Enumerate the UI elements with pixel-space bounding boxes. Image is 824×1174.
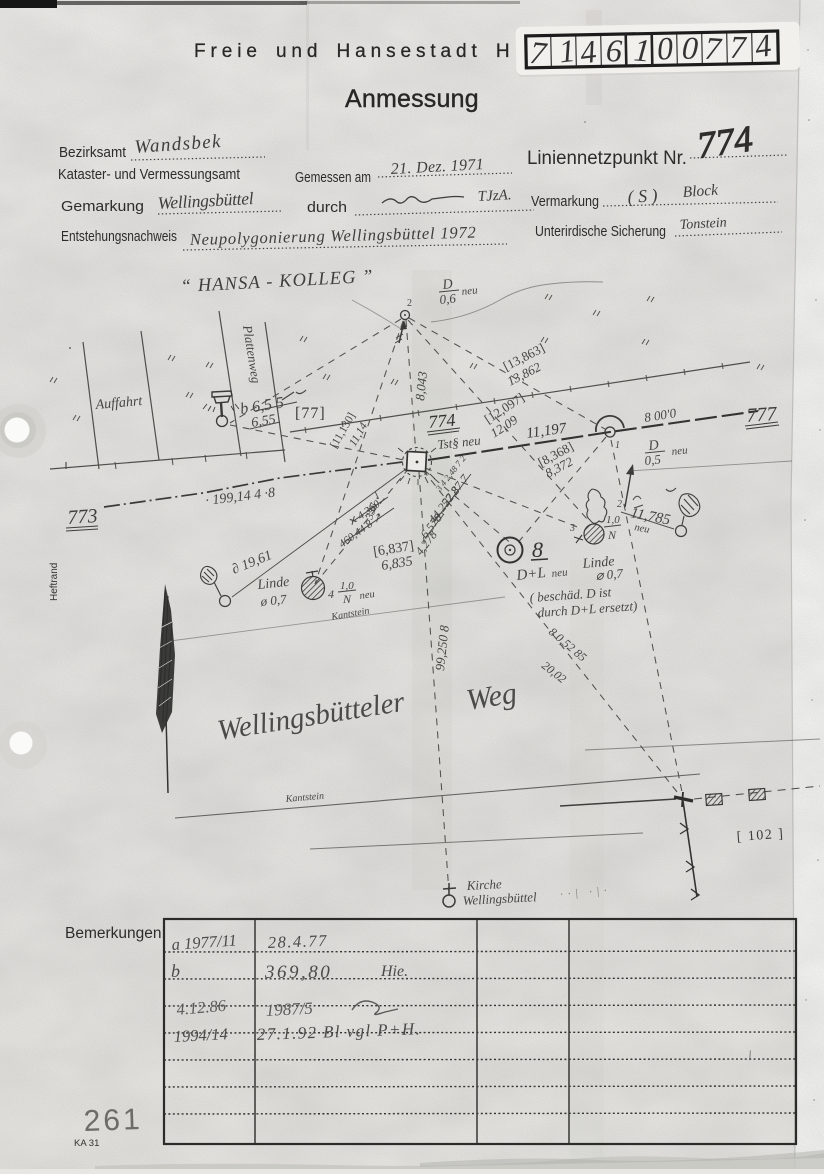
svg-text:1994/14: 1994/14 bbox=[173, 1024, 228, 1046]
svg-text:b: b bbox=[171, 961, 180, 981]
svg-text:1987/5: 1987/5 bbox=[265, 999, 313, 1020]
svg-text:( S ): ( S ) bbox=[627, 185, 658, 208]
svg-text:Heftrand: Heftrand bbox=[49, 563, 60, 601]
svg-text:1,0: 1,0 bbox=[606, 514, 620, 526]
svg-text:Bemerkungen:: Bemerkungen: bbox=[65, 925, 166, 942]
svg-text:Gemarkung: Gemarkung bbox=[61, 198, 144, 215]
svg-text:Block: Block bbox=[682, 181, 720, 200]
svg-text:neu: neu bbox=[671, 444, 689, 458]
svg-text:neu: neu bbox=[461, 284, 479, 298]
svg-text:774: 774 bbox=[695, 119, 756, 167]
svg-text:neu: neu bbox=[551, 566, 569, 580]
svg-text:TJzA.: TJzA. bbox=[477, 187, 512, 205]
svg-text:6: 6 bbox=[605, 32, 623, 69]
svg-text:N: N bbox=[342, 592, 352, 606]
svg-text:0,6: 0,6 bbox=[439, 290, 457, 307]
svg-text:8,043: 8,043 bbox=[412, 370, 430, 401]
svg-text:Hie.: Hie. bbox=[380, 963, 408, 980]
svg-text:N: N bbox=[607, 528, 617, 542]
svg-text:0,5: 0,5 bbox=[644, 451, 662, 468]
svg-text:[77]: [77] bbox=[295, 405, 326, 422]
svg-text:773: 773 bbox=[67, 505, 98, 529]
svg-text:261: 261 bbox=[83, 1103, 143, 1138]
svg-text:7: 7 bbox=[730, 29, 749, 65]
svg-text:28.4.77: 28.4.77 bbox=[267, 931, 328, 952]
svg-text:1: 1 bbox=[615, 440, 620, 451]
svg-text:369,80: 369,80 bbox=[264, 962, 332, 983]
svg-text:777: 777 bbox=[746, 403, 778, 427]
svg-text:0: 0 bbox=[681, 29, 699, 66]
svg-text:8: 8 bbox=[532, 537, 543, 562]
svg-text:0: 0 bbox=[656, 30, 675, 67]
svg-text:Liniennetzpunkt Nr.: Liniennetzpunkt Nr. bbox=[527, 147, 687, 169]
svg-text:4: 4 bbox=[328, 587, 334, 601]
svg-text:⌀ 0,7: ⌀ 0,7 bbox=[595, 566, 624, 583]
svg-text:1: 1 bbox=[632, 31, 651, 68]
svg-text:3: 3 bbox=[569, 523, 575, 534]
svg-text:KA 31: KA 31 bbox=[74, 1138, 99, 1149]
svg-text:Unterirdische Sicherung: Unterirdische Sicherung bbox=[535, 223, 666, 240]
svg-text:durch: durch bbox=[307, 199, 347, 216]
svg-text:D+L: D+L bbox=[515, 565, 547, 584]
svg-text:ø 0,7: ø 0,7 bbox=[259, 591, 288, 609]
svg-text:Vermarkung: Vermarkung bbox=[531, 193, 599, 210]
svg-text:Bezirksamt: Bezirksamt bbox=[59, 145, 126, 161]
svg-text:2: 2 bbox=[617, 499, 622, 510]
svg-text:2: 2 bbox=[407, 298, 412, 309]
svg-text:Freie und Hansestadt H: Freie und Hansestadt H bbox=[194, 41, 514, 62]
svg-text:Anmessung: Anmessung bbox=[345, 85, 479, 113]
svg-text:Gemessen am: Gemessen am bbox=[295, 169, 371, 186]
svg-text:Tonstein: Tonstein bbox=[679, 216, 727, 233]
svg-text:neu: neu bbox=[359, 589, 376, 602]
svg-text:Kataster- und Vermessungsamt: Kataster- und Vermessungsamt bbox=[58, 166, 241, 183]
svg-text:Entstehungsnachweis: Entstehungsnachweis bbox=[61, 228, 177, 245]
